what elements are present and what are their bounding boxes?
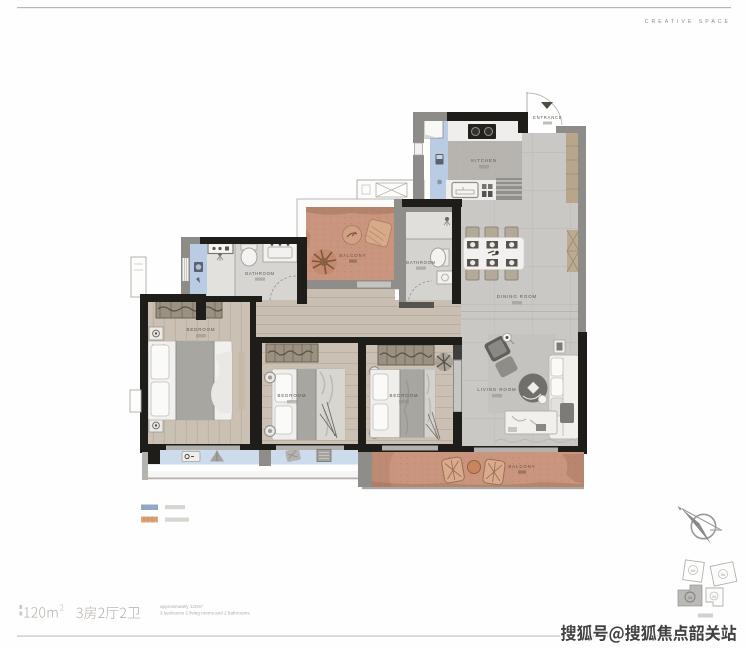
svg-text:BALCONY: BALCONY <box>339 253 366 258</box>
svg-text:6#: 6# <box>691 568 696 573</box>
svg-text:BEDROOM: BEDROOM <box>390 393 419 398</box>
svg-text:ENTRANCE: ENTRANCE <box>533 115 562 120</box>
svg-text:2#: 2# <box>712 594 717 599</box>
svg-text:DINING ROOM: DINING ROOM <box>497 294 537 299</box>
svg-text:LIVING ROOM: LIVING ROOM <box>477 387 516 392</box>
svg-text:3#: 3# <box>688 595 693 600</box>
svg-text:BEDROOM: BEDROOM <box>278 393 307 398</box>
svg-text:5#: 5# <box>721 572 726 577</box>
svg-text:BATHROOM: BATHROOM <box>406 260 435 265</box>
svg-text:BATHROOM: BATHROOM <box>245 271 274 276</box>
svg-text:KITCHEN: KITCHEN <box>471 158 497 163</box>
svg-text:approximately 120m²: approximately 120m² <box>160 604 203 609</box>
svg-text:BALCONY: BALCONY <box>508 464 535 469</box>
svg-text:3 bedrooms 2 living rooms and: 3 bedrooms 2 living rooms and 2 bathroom… <box>160 611 250 616</box>
svg-text:BEDROOM: BEDROOM <box>187 327 216 332</box>
svg-text:CREATIVE SPACE: CREATIVE SPACE <box>645 19 731 25</box>
